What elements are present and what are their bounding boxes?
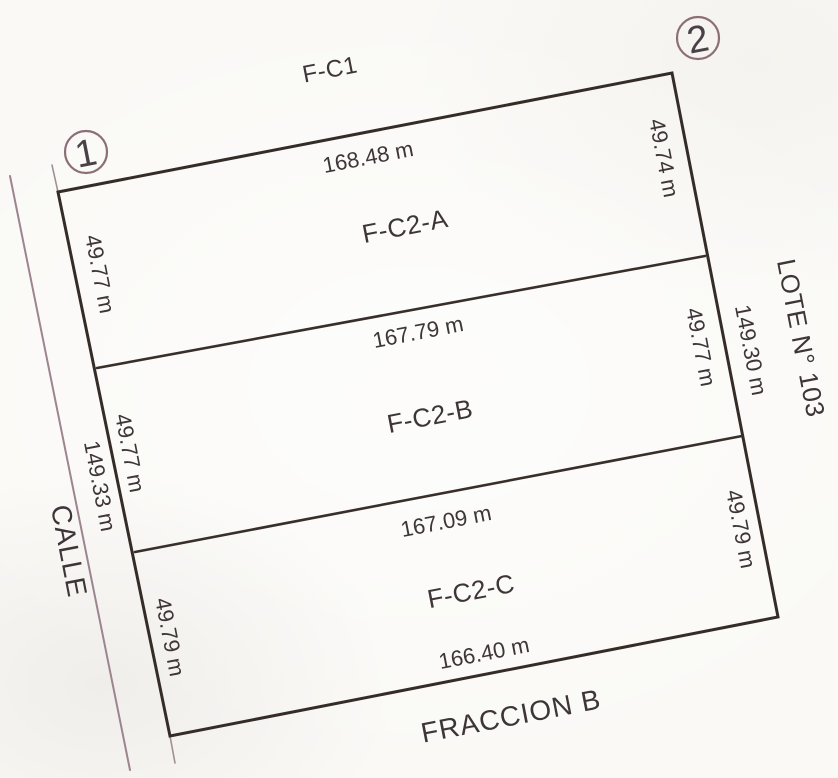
neighbor-label-north: F-C1 (300, 51, 359, 88)
parcel-b-east-measure: 49.77 m (681, 306, 721, 389)
survey-plan-page: 1 2 F-C1 LOTE N° 103 FRACCION B CALLE 14… (0, 0, 838, 778)
vertex-marker-2: 2 (677, 17, 719, 63)
parcel-c-north-measure: 167.09 m (399, 500, 494, 542)
survey-plan-drawing: 1 2 F-C1 LOTE N° 103 FRACCION B CALLE 14… (0, 0, 838, 778)
parcel-a: 168.48 m F-C2-A 49.77 m 49.74 m (80, 117, 684, 316)
vertex-marker-1: 1 (65, 131, 107, 177)
parcel-c: 167.09 m F-C2-C 49.79 m 49.79 m 166.40 m (150, 488, 761, 679)
west-boundary-tick-bottom (170, 736, 175, 763)
total-length-west: 149.33 m (79, 439, 121, 534)
parcel-a-west-measure: 49.77 m (80, 233, 120, 316)
divider-a-b (97, 256, 705, 368)
parcel-a-east-measure: 49.74 m (644, 117, 684, 200)
parcel-b-north-measure: 167.79 m (371, 311, 466, 353)
parcel-c-name: F-C2-C (425, 568, 517, 614)
parcel-a-name: F-C2-A (360, 203, 451, 249)
neighbor-label-east: LOTE N° 103 (771, 256, 831, 419)
west-boundary-tick-top (52, 165, 58, 192)
parcel-a-north-measure: 168.48 m (321, 136, 416, 178)
parcel-b-west-measure: 49.77 m (110, 412, 150, 495)
parcel-b: 167.79 m F-C2-B 49.77 m 49.77 m (110, 306, 721, 495)
parcel-b-name: F-C2-B (385, 393, 476, 439)
total-length-east: 149.30 m (730, 303, 772, 398)
neighbor-label-south: FRACCION B (418, 683, 603, 748)
